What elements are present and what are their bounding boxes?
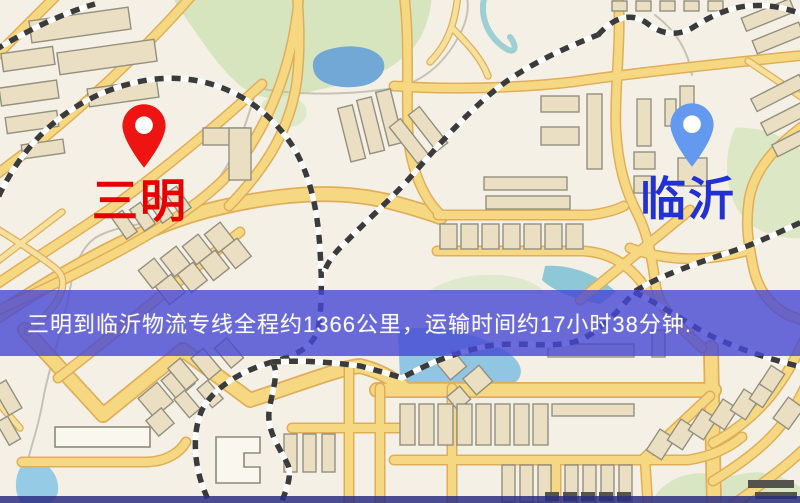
pin-body: [122, 104, 165, 167]
origin-map-pin-icon[interactable]: [118, 103, 170, 169]
route-info-text: 三明到临沂物流专线全程约1366公里，运输时间约17小时38分钟.: [0, 307, 692, 339]
destination-city-label: 临沂: [640, 175, 736, 223]
origin-city-label: 三明: [92, 177, 188, 225]
destination-map-pin-icon[interactable]: [666, 102, 718, 168]
route-info-banner: 三明到临沂物流专线全程约1366公里，运输时间约17小时38分钟.: [0, 290, 800, 356]
pin-hole: [135, 116, 153, 134]
map-image: [0, 0, 800, 503]
pin-body: [670, 103, 713, 166]
map-canvas[interactable]: 三明到临沂物流专线全程约1366公里，运输时间约17小时38分钟. 三明 临沂: [0, 0, 800, 503]
bottom-edge-strip: [0, 496, 800, 503]
pin-hole: [683, 115, 701, 133]
